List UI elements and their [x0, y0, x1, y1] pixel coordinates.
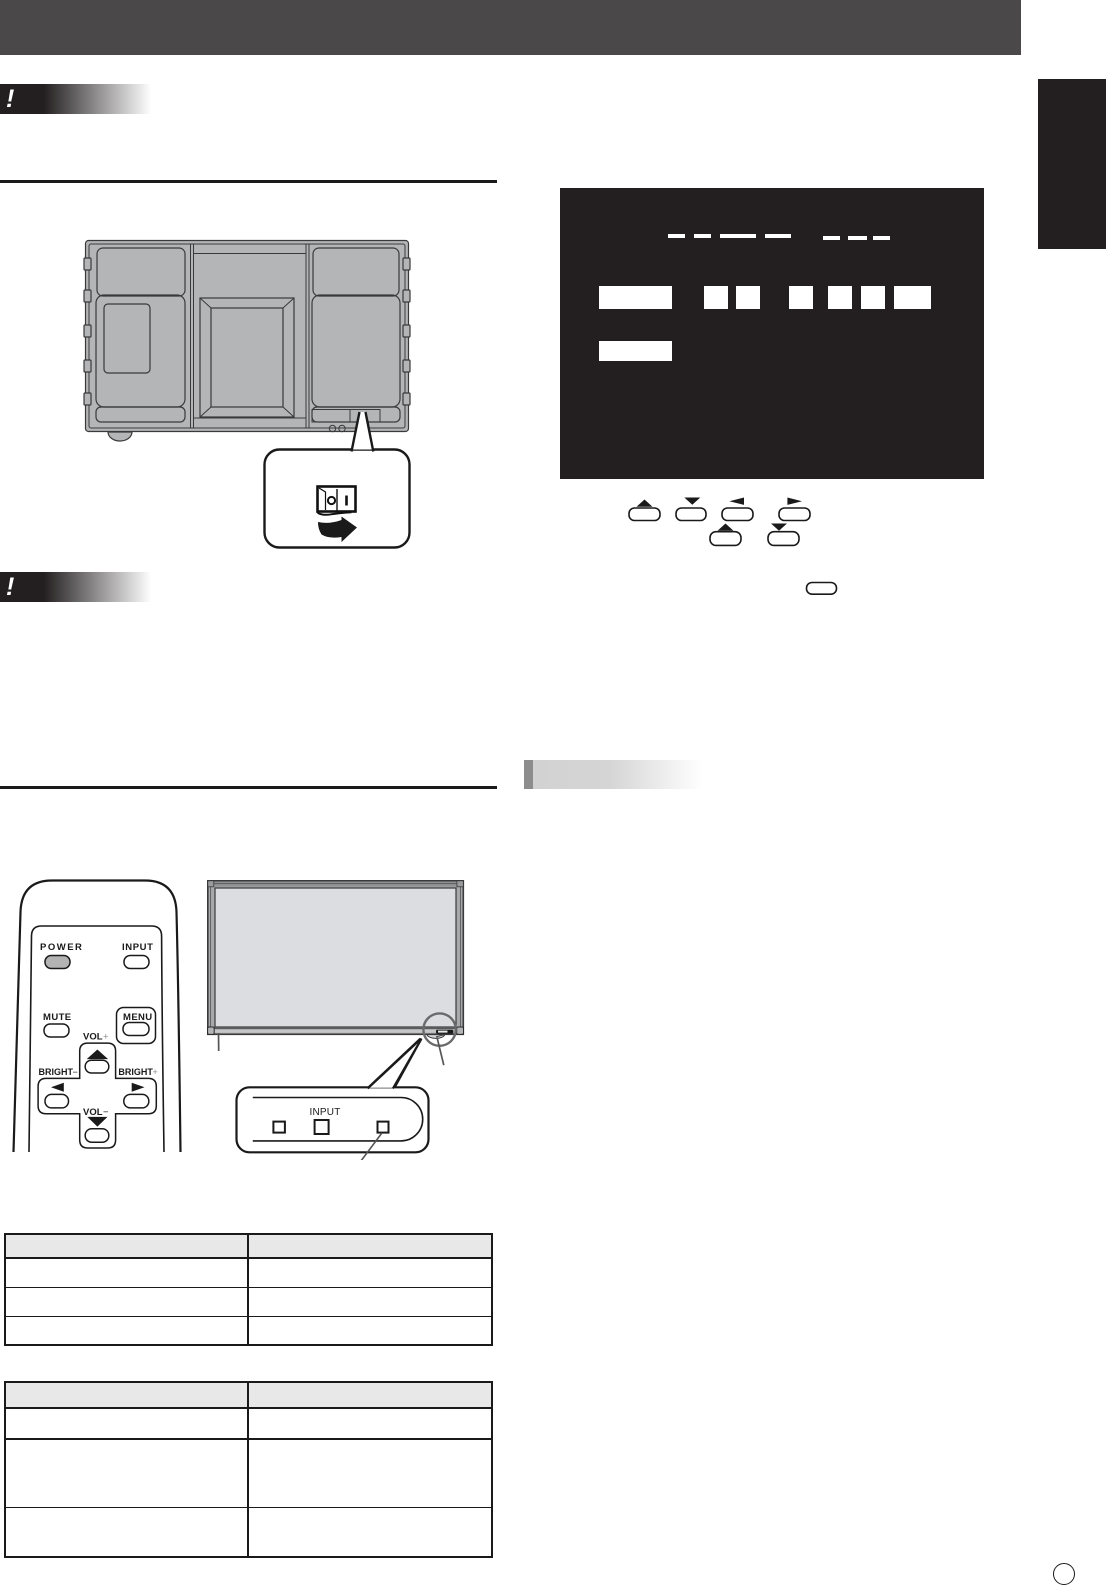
svg-text:MUTE: MUTE — [43, 1012, 72, 1023]
svg-text:INPUT: INPUT — [310, 1107, 341, 1118]
svg-text:INPUT: INPUT — [122, 942, 154, 953]
svg-text:BRIGHT: BRIGHT — [118, 1067, 153, 1077]
svg-text:+: + — [103, 1032, 109, 1043]
svg-text:VOL: VOL — [83, 1032, 103, 1043]
svg-text:−: − — [103, 1107, 109, 1118]
svg-text:+: + — [153, 1067, 158, 1077]
svg-text:VOL: VOL — [83, 1107, 103, 1118]
svg-text:POWER: POWER — [40, 942, 83, 953]
svg-text:−: − — [73, 1067, 78, 1077]
svg-text:MENU: MENU — [123, 1012, 153, 1023]
svg-text:BRIGHT: BRIGHT — [39, 1067, 74, 1077]
